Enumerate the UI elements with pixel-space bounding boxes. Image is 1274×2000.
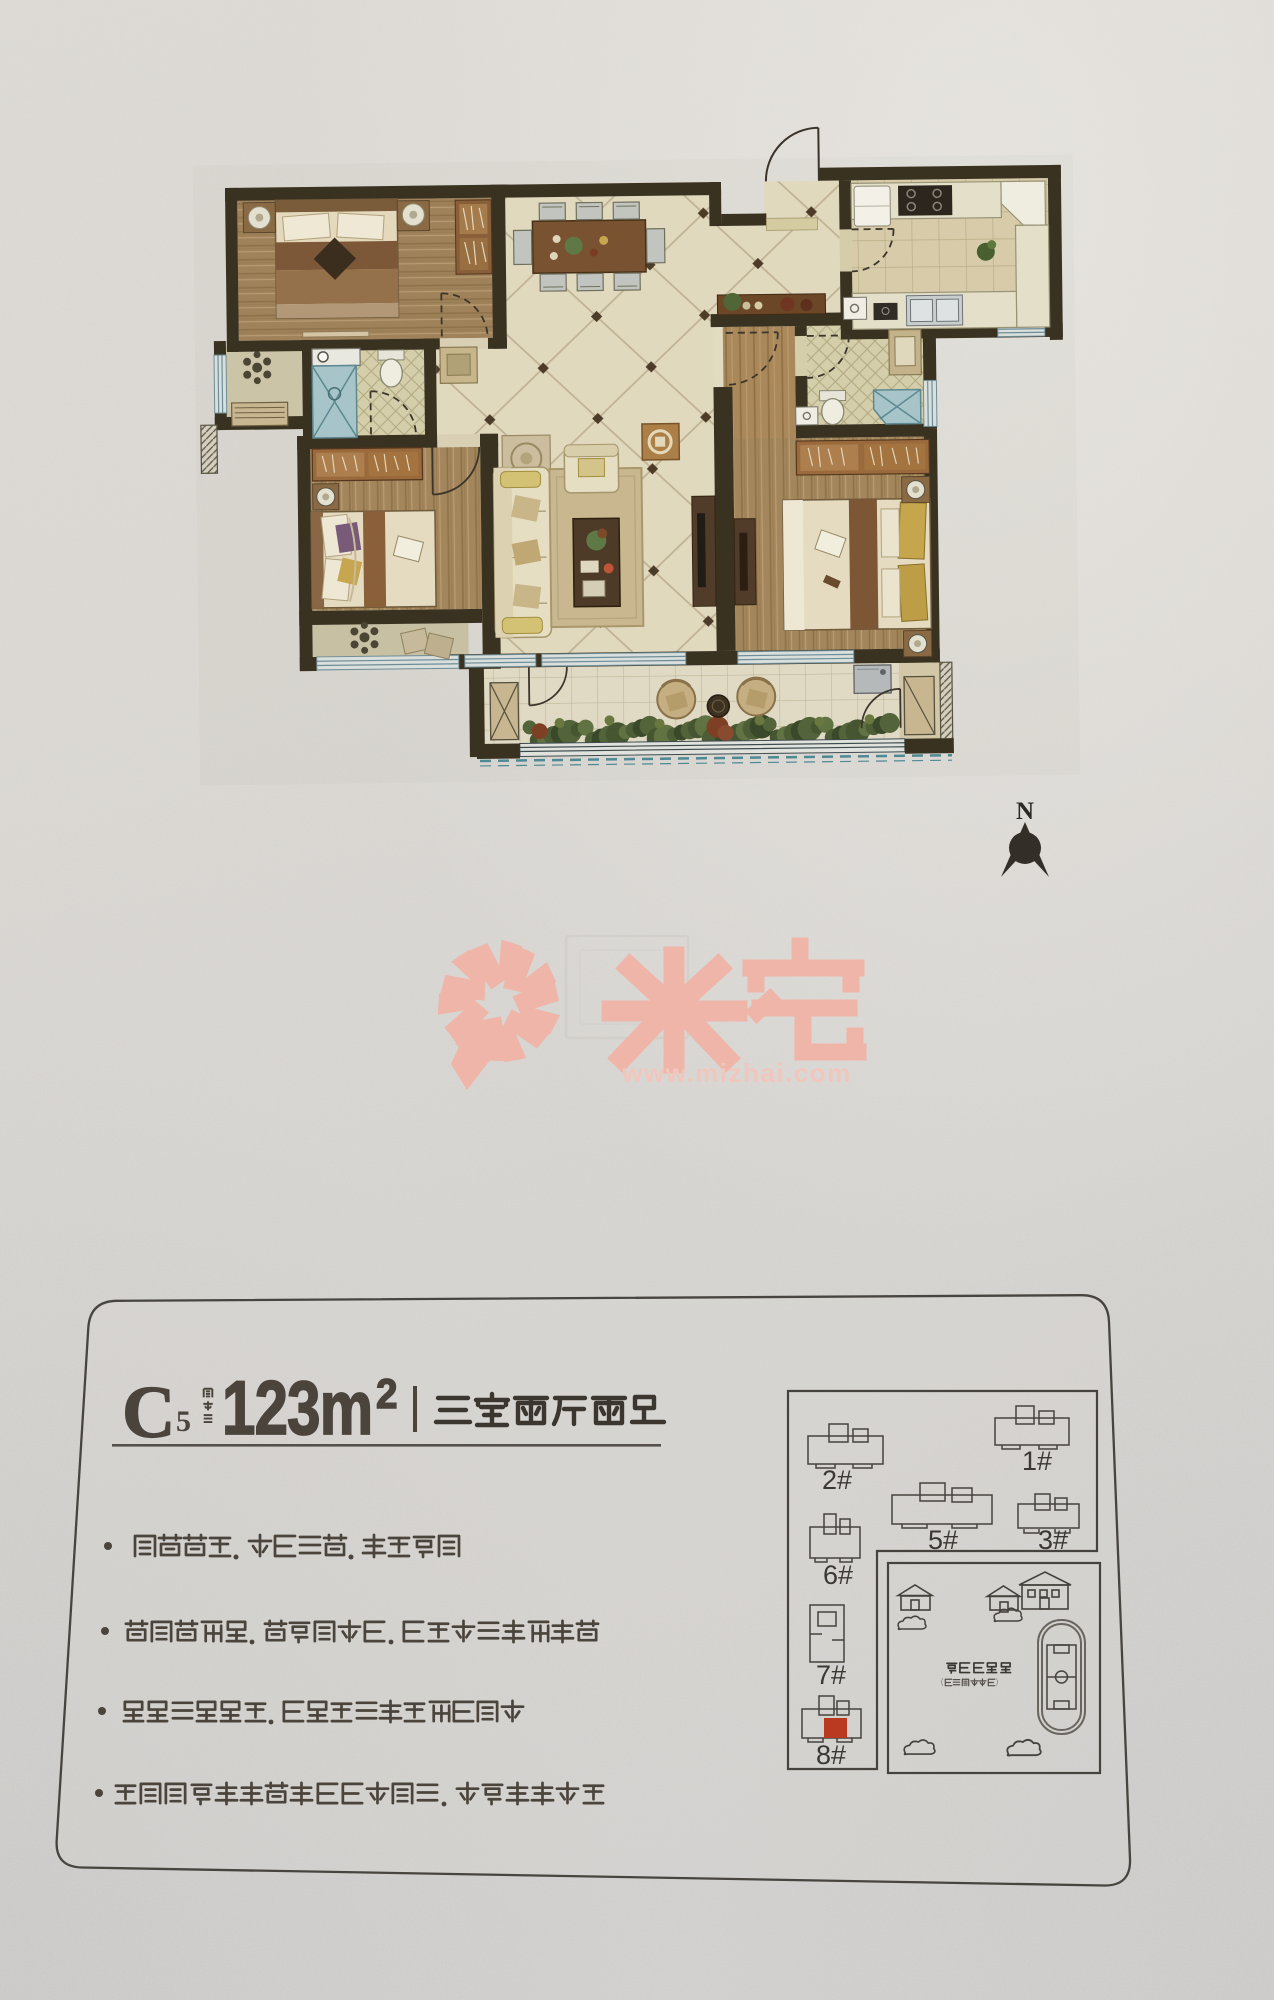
svg-text:www.mizhai.com: www.mizhai.com	[621, 1058, 852, 1088]
svg-text:123m: 123m	[222, 1365, 372, 1450]
svg-text:N: N	[1016, 798, 1034, 825]
svg-text:5#: 5#	[928, 1525, 958, 1555]
svg-text:8#: 8#	[816, 1740, 846, 1770]
svg-text:2: 2	[376, 1369, 397, 1417]
svg-text:5: 5	[176, 1405, 191, 1438]
svg-text:1#: 1#	[1022, 1446, 1052, 1476]
svg-text:6#: 6#	[823, 1560, 853, 1590]
svg-text:3#: 3#	[1038, 1525, 1068, 1555]
svg-text:C: C	[122, 1372, 175, 1454]
svg-text:2#: 2#	[822, 1465, 852, 1495]
svg-text:7#: 7#	[816, 1660, 846, 1690]
